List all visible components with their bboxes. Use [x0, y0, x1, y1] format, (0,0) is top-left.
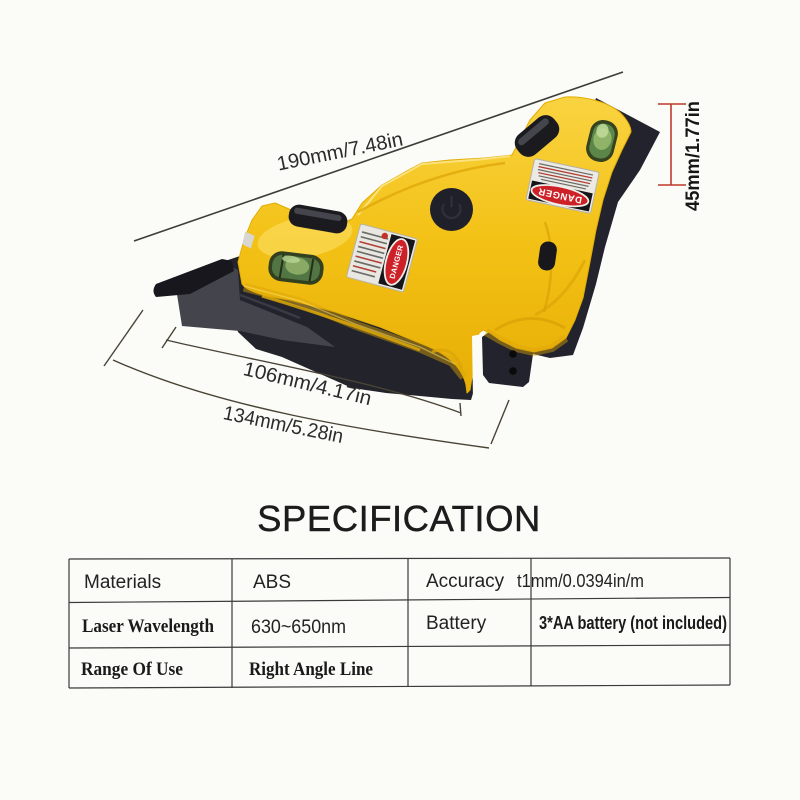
svg-text:Accuracy: Accuracy [426, 571, 505, 592]
svg-text:Range Of Use: Range Of Use [81, 659, 183, 680]
svg-text:Laser Wavelength: Laser Wavelength [82, 616, 214, 637]
svg-text:SPECIFICATION: SPECIFICATION [257, 498, 541, 539]
svg-text:630~650nm: 630~650nm [251, 617, 346, 638]
svg-text:3*AA battery (not included): 3*AA battery (not included) [539, 613, 727, 633]
svg-text:45mm/1.77in: 45mm/1.77in [682, 101, 704, 211]
svg-text:ABS: ABS [253, 572, 291, 593]
svg-text:t1mm/0.0394in/m: t1mm/0.0394in/m [517, 571, 644, 591]
svg-text:Materials: Materials [84, 572, 161, 593]
svg-text:Battery: Battery [426, 613, 487, 634]
svg-text:Right Angle Line: Right Angle Line [249, 659, 373, 680]
